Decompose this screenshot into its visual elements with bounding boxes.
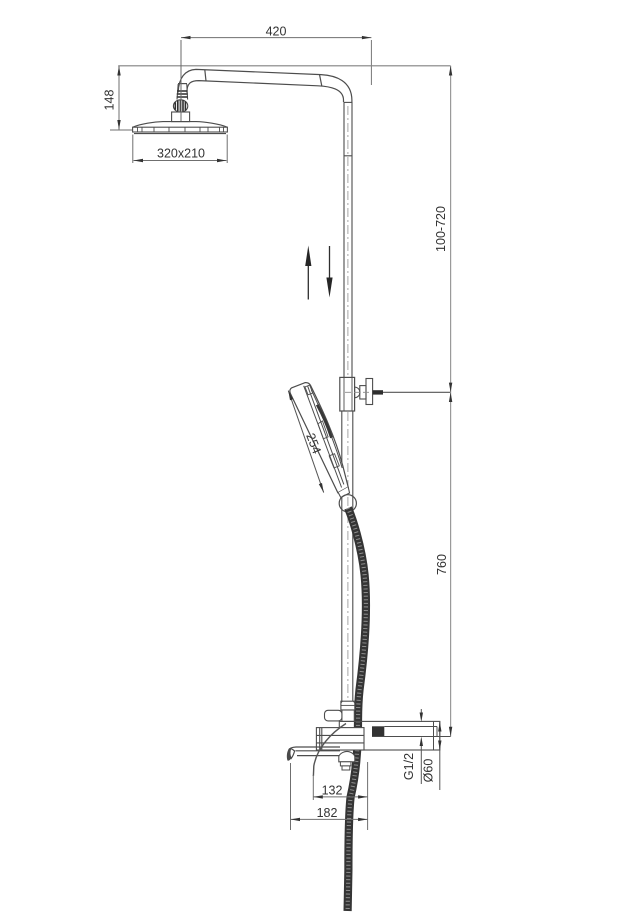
svg-text:760: 760 (435, 554, 449, 575)
svg-text:148: 148 (103, 90, 117, 111)
svg-text:Ø60: Ø60 (422, 759, 436, 783)
svg-text:420: 420 (266, 25, 287, 39)
svg-text:100-720: 100-720 (434, 206, 448, 252)
svg-text:G1/2: G1/2 (402, 753, 416, 780)
svg-text:132: 132 (322, 784, 343, 798)
svg-text:182: 182 (317, 806, 338, 820)
svg-text:320x210: 320x210 (157, 147, 205, 161)
